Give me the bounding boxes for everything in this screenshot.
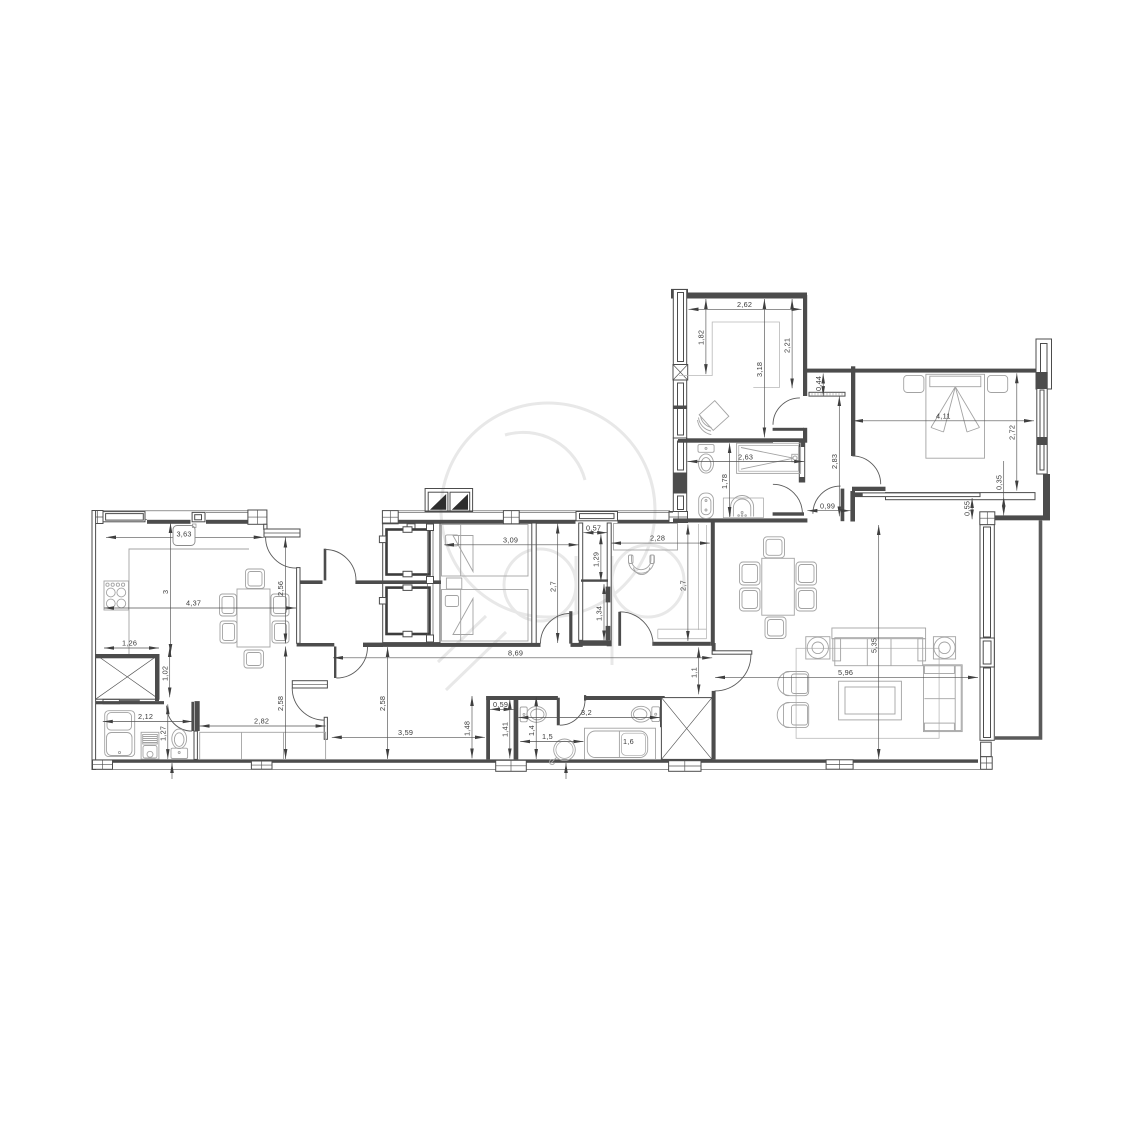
svg-text:2,63: 2,63 <box>738 452 753 461</box>
svg-text:2,58: 2,58 <box>276 696 285 711</box>
svg-text:2,83: 2,83 <box>830 454 839 469</box>
svg-text:2,28: 2,28 <box>650 534 665 543</box>
svg-text:2,12: 2,12 <box>138 712 153 721</box>
svg-text:3,2: 3,2 <box>581 708 592 717</box>
svg-text:1,1: 1,1 <box>689 667 698 678</box>
svg-text:0,44: 0,44 <box>814 376 823 391</box>
svg-text:2,62: 2,62 <box>737 300 752 309</box>
svg-text:1,6: 1,6 <box>623 737 634 746</box>
svg-text:3: 3 <box>161 590 170 594</box>
svg-text:1,27: 1,27 <box>158 726 167 741</box>
svg-text:0,99: 0,99 <box>820 501 835 510</box>
svg-text:5,96: 5,96 <box>838 668 853 677</box>
svg-text:2,7: 2,7 <box>548 581 557 592</box>
svg-text:5,35: 5,35 <box>869 638 878 653</box>
svg-text:4,11: 4,11 <box>936 411 951 420</box>
svg-text:8,69: 8,69 <box>508 648 523 657</box>
svg-text:1,48: 1,48 <box>463 721 472 736</box>
svg-text:0,35: 0,35 <box>994 475 1003 490</box>
svg-text:1,34: 1,34 <box>595 606 604 621</box>
svg-text:1,78: 1,78 <box>720 474 729 489</box>
svg-text:3,59: 3,59 <box>398 728 413 737</box>
svg-text:3,09: 3,09 <box>503 535 518 544</box>
svg-text:1,4: 1,4 <box>527 725 536 736</box>
svg-text:0,59: 0,59 <box>493 700 508 709</box>
svg-text:2,82: 2,82 <box>254 717 269 726</box>
svg-text:2,21: 2,21 <box>783 338 792 353</box>
svg-text:3,63: 3,63 <box>177 530 192 539</box>
svg-text:4,37: 4,37 <box>186 599 201 608</box>
svg-text:1,26: 1,26 <box>122 639 137 648</box>
svg-text:1,02: 1,02 <box>160 666 169 681</box>
svg-text:0,57: 0,57 <box>586 523 601 532</box>
svg-text:1,29: 1,29 <box>592 552 601 567</box>
svg-text:1,5: 1,5 <box>542 732 553 741</box>
svg-text:0,55: 0,55 <box>963 501 972 516</box>
svg-text:2,72: 2,72 <box>1007 425 1016 440</box>
svg-text:1,41: 1,41 <box>500 722 509 737</box>
svg-text:2,56: 2,56 <box>276 581 285 596</box>
svg-text:2,58: 2,58 <box>378 696 387 711</box>
svg-text:2,7: 2,7 <box>679 580 688 591</box>
svg-text:1,82: 1,82 <box>697 330 706 345</box>
svg-text:3,18: 3,18 <box>755 362 764 377</box>
